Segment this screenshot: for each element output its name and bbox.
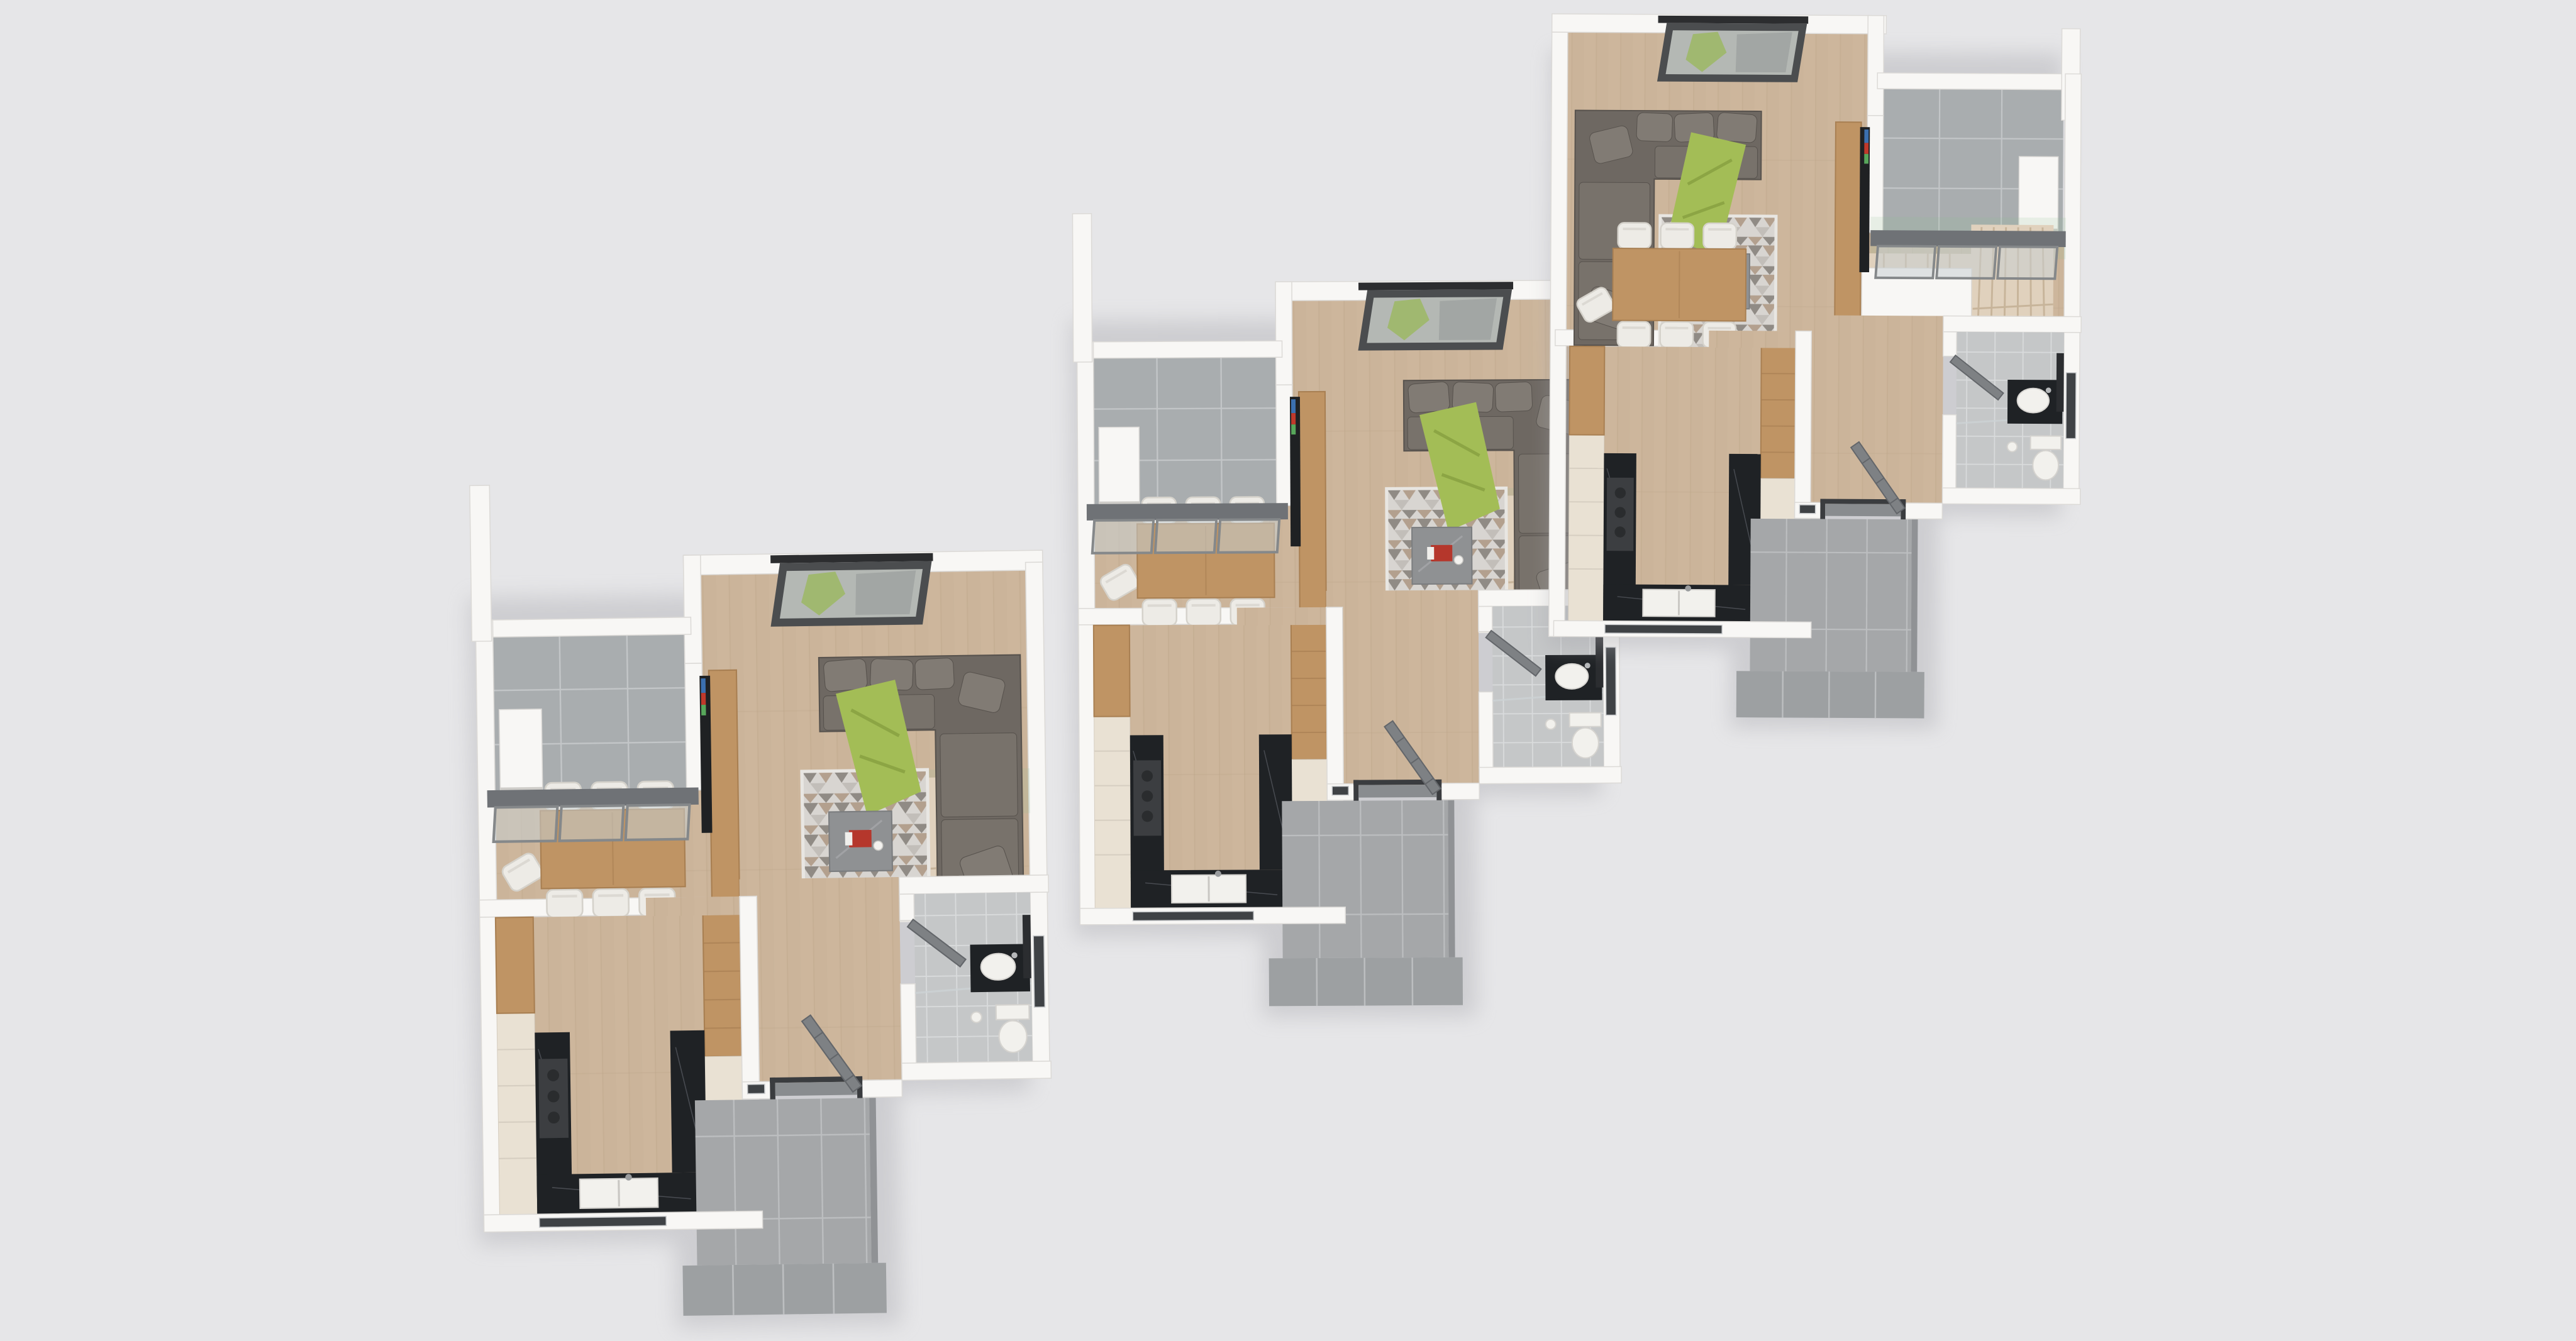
render-canvas [0, 0, 2576, 1341]
floorplan-render [0, 0, 2576, 1341]
